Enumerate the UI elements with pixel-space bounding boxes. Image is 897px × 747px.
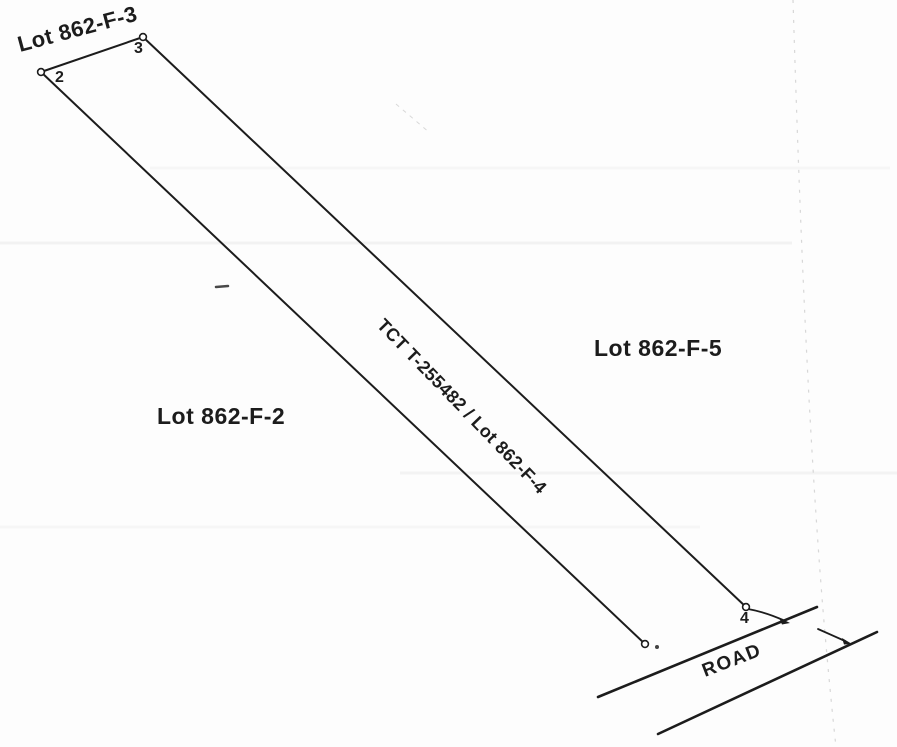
lot-862-f-2-label: Lot 862-F-2 <box>157 403 285 429</box>
corner-2-label: 2 <box>55 69 64 86</box>
road-label: ROAD <box>699 640 764 682</box>
lot-862-f-3-label: Lot 862-F-3 <box>15 1 140 57</box>
lot-sketch-drawing: 2 3 4 Lot 862-F-3 Lot 862-F-2 Lot 862-F-… <box>0 0 897 747</box>
road <box>598 607 877 734</box>
road-edge-lower <box>658 632 877 734</box>
corner-2-marker <box>38 69 45 76</box>
corner4-leader-line <box>748 609 783 620</box>
corner-3-label: 3 <box>134 40 143 57</box>
lot-862-f-5-label: Lot 862-F-5 <box>594 335 722 361</box>
scanned-survey-sketch: 2 3 4 Lot 862-F-3 Lot 862-F-2 Lot 862-F-… <box>0 0 897 747</box>
road-dash-arrowhead <box>842 638 852 645</box>
stray-ink-dash <box>216 286 228 287</box>
scan-speck-diagonal <box>396 104 430 133</box>
scan-artifacts <box>0 0 897 747</box>
road-continuation-dash <box>818 629 845 641</box>
corner-bottom-marker <box>642 641 649 648</box>
stray-ink-dot <box>655 645 659 649</box>
boundary-line-west <box>41 72 645 644</box>
boundary-line-east <box>143 37 746 607</box>
corner-4-label: 4 <box>740 610 749 627</box>
corner4-leader <box>748 609 790 625</box>
